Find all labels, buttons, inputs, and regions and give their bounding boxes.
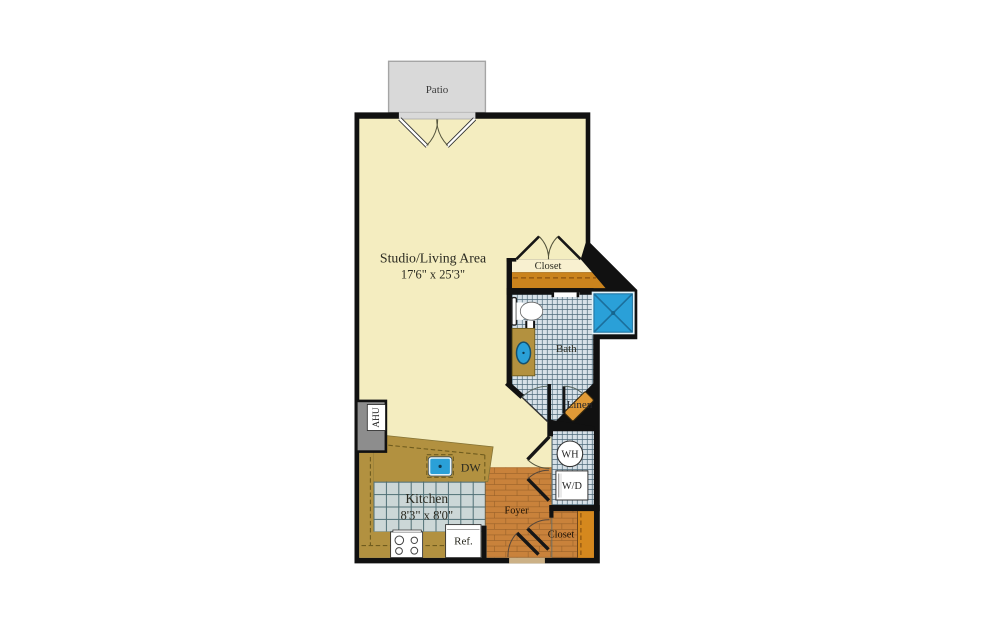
svg-text:WH: WH	[561, 449, 579, 460]
svg-text:Linen: Linen	[567, 399, 593, 411]
svg-text:Closet: Closet	[535, 261, 562, 272]
svg-text:Patio: Patio	[426, 84, 449, 96]
svg-text:DW: DW	[461, 460, 482, 474]
svg-text:Kitchen: Kitchen	[405, 491, 448, 506]
svg-text:8'3" x 8'0": 8'3" x 8'0"	[400, 509, 453, 523]
svg-text:Foyer: Foyer	[504, 506, 529, 517]
svg-text:Closet: Closet	[548, 530, 575, 541]
svg-text:AHU: AHU	[372, 407, 382, 427]
svg-text:Ref.: Ref.	[454, 536, 473, 548]
svg-text:Studio/Living Area: Studio/Living Area	[380, 251, 486, 266]
svg-text:Bath: Bath	[556, 343, 577, 355]
svg-text:W/D: W/D	[562, 481, 583, 492]
svg-text:17'6" x 25'3": 17'6" x 25'3"	[401, 268, 465, 282]
